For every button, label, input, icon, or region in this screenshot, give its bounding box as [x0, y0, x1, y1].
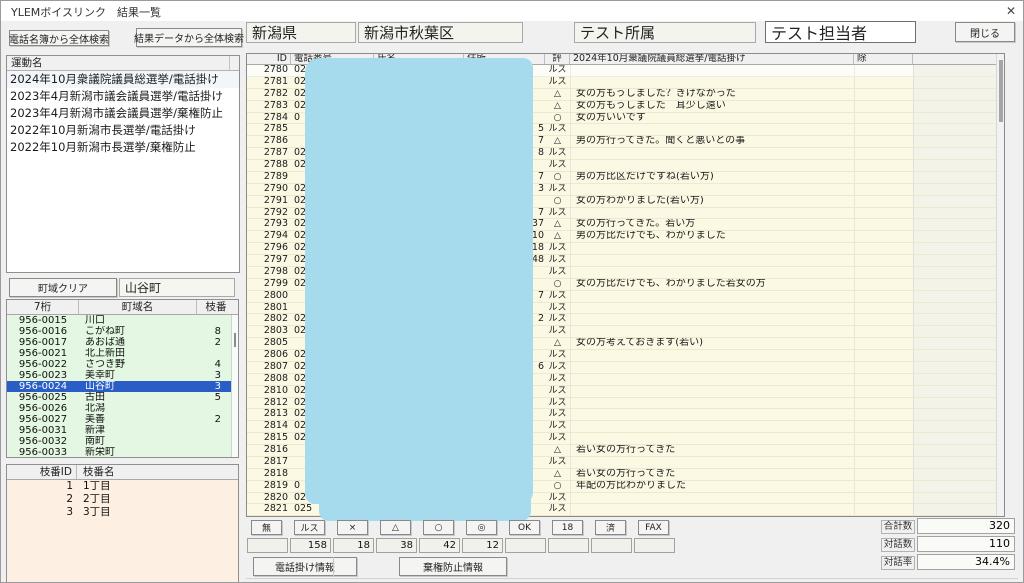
result-id: 2814 — [247, 421, 291, 432]
bottom-divider — [246, 578, 1018, 579]
result-eval: ○ — [545, 196, 570, 207]
town-name: 北上新田 — [79, 348, 197, 359]
town-name: 北潟 — [79, 403, 197, 414]
result-filler — [913, 219, 1004, 230]
result-exclude — [854, 350, 913, 361]
result-eval: ○ — [545, 279, 570, 290]
branch-name: 1丁目 — [77, 480, 238, 493]
result-filler — [913, 303, 1004, 314]
result-exclude — [854, 279, 913, 290]
result-exclude — [854, 481, 913, 492]
result-id: 2810 — [247, 386, 291, 397]
result-comment — [570, 303, 854, 314]
town-zip: 956-0031 — [7, 425, 79, 436]
result-filler — [913, 386, 1004, 397]
result-comment — [570, 148, 854, 159]
result-eval: ルス — [545, 421, 570, 432]
town-row[interactable]: 956-0017あおば通2 — [7, 337, 238, 348]
result-comment — [570, 326, 854, 337]
town-branch-count — [197, 403, 235, 414]
result-exclude — [854, 267, 913, 278]
town-row[interactable]: 956-0023美幸町3 — [7, 370, 238, 381]
eval-filter-button[interactable]: OK — [509, 520, 540, 535]
result-eval: ルス — [545, 504, 570, 515]
town-col-zip: 7桁 — [7, 300, 79, 314]
result-filler — [913, 77, 1004, 88]
result-comment: 男の方比区だけですね(若い方) — [570, 172, 854, 183]
result-filler — [913, 421, 1004, 432]
result-filler — [913, 184, 1004, 195]
result-filler — [913, 136, 1004, 147]
branch-id: 3 — [7, 506, 77, 519]
result-exclude — [854, 445, 913, 456]
town-row[interactable]: 956-0025古田5 — [7, 392, 238, 403]
result-filler — [913, 493, 1004, 504]
campaign-item[interactable]: 2022年10月新潟市長選挙/電話掛け — [7, 122, 239, 139]
result-exclude — [854, 89, 913, 100]
call-info-button[interactable]: 電話掛け情報 — [253, 557, 357, 576]
search-results-button[interactable]: 結果データから全体検索 — [136, 28, 242, 47]
stat-value: 34.4% — [917, 554, 1015, 570]
result-exclude — [854, 124, 913, 135]
stat-label: 合計数 — [881, 520, 915, 534]
town-name: 南町 — [79, 436, 197, 447]
result-comment: 女の方行ってきた。若い方 — [570, 219, 854, 230]
result-comment — [570, 433, 854, 444]
search-phonebook-button[interactable]: 電話名簿から全体検索 — [9, 30, 109, 46]
result-exclude — [854, 101, 913, 112]
town-row[interactable]: 956-0032南町 — [7, 436, 238, 447]
redaction-overlay — [305, 58, 533, 504]
result-id: 2803 — [247, 326, 291, 337]
town-name: 古田 — [79, 392, 197, 403]
eval-filter-button[interactable]: ○ — [423, 520, 454, 535]
result-exclude — [854, 172, 913, 183]
branch-col-id: 枝番ID — [7, 465, 77, 479]
result-exclude — [854, 184, 913, 195]
result-eval: △ — [545, 101, 570, 112]
result-eval: ルス — [545, 184, 570, 195]
result-eval: ○ — [545, 172, 570, 183]
result-id: 2790 — [247, 184, 291, 195]
result-id: 2787 — [247, 148, 291, 159]
town-branch-count: 3 — [197, 381, 235, 392]
result-filler — [913, 326, 1004, 337]
eval-filter-button[interactable]: △ — [380, 520, 411, 535]
town-zip: 956-0016 — [7, 326, 79, 337]
result-comment — [570, 208, 854, 219]
result-filler — [913, 243, 1004, 254]
result-eval: △ — [545, 219, 570, 230]
result-exclude — [854, 255, 913, 266]
result-id: 2797 — [247, 255, 291, 266]
result-id: 2798 — [247, 267, 291, 278]
town-row[interactable]: 956-0022さつき野4 — [7, 359, 238, 370]
result-exclude — [854, 291, 913, 302]
branch-id: 1 — [7, 480, 77, 493]
branch-table: 枝番ID 枝番名 11丁目22丁目33丁目 — [6, 464, 239, 583]
result-exclude — [854, 504, 913, 515]
results-scrollbar[interactable] — [996, 54, 1004, 516]
stat-label: 対話率 — [881, 556, 915, 570]
result-id: 2817 — [247, 457, 291, 468]
result-comment — [570, 350, 854, 361]
town-zip: 956-0026 — [7, 403, 79, 414]
affiliation-field: テスト所属 — [574, 22, 756, 43]
campaign-header: 運動名 — [7, 56, 239, 71]
result-filler — [913, 457, 1004, 468]
result-id: 2806 — [247, 350, 291, 361]
town-name: 新栄町 — [79, 447, 197, 458]
town-scrollbar-thumb[interactable] — [234, 333, 236, 347]
campaign-list: 2024年10月衆議院議員総選挙/電話掛け2023年4月新潟市議会議員選挙/電話… — [7, 71, 239, 156]
result-id: 2818 — [247, 469, 291, 480]
result-eval: ○ — [545, 481, 570, 492]
result-eval: ルス — [545, 303, 570, 314]
town-name: 新津 — [79, 425, 197, 436]
close-icon[interactable]: ✕ — [1003, 3, 1019, 19]
bottom-separator — [333, 557, 334, 576]
town-row[interactable]: 956-0015川口 — [7, 315, 238, 326]
col-campaign-comment: 2024年10月衆議院議員総選挙/電話掛け — [570, 54, 854, 64]
branch-id: 2 — [7, 493, 77, 506]
town-branch-count: 4 — [197, 359, 235, 370]
result-id: 2791 — [247, 196, 291, 207]
result-eval: ルス — [545, 65, 570, 76]
town-zip: 956-0015 — [7, 315, 79, 326]
result-id: 2800 — [247, 291, 291, 302]
result-eval: ルス — [545, 314, 570, 325]
stat-value: 320 — [917, 518, 1015, 534]
col-eval: 評 — [545, 54, 570, 64]
result-filler — [913, 148, 1004, 159]
result-comment: 若い女の方行ってきた — [570, 445, 854, 456]
town-name: あおば通 — [79, 337, 197, 348]
results-scrollbar-thumb[interactable] — [999, 60, 1003, 122]
result-comment — [570, 77, 854, 88]
result-exclude — [854, 160, 913, 171]
result-filler — [913, 433, 1004, 444]
result-exclude — [854, 113, 913, 124]
result-id: 2784 — [247, 113, 291, 124]
result-filler — [913, 196, 1004, 207]
eval-count-box: 18 — [333, 538, 374, 553]
result-id: 2801 — [247, 303, 291, 314]
result-eval: ルス — [545, 398, 570, 409]
result-comment — [570, 255, 854, 266]
town-table-body: 956-0015川口956-0016こがね町8956-0017あおば通2956-… — [7, 315, 238, 458]
eval-filter-button[interactable]: FAX — [638, 520, 669, 535]
town-row[interactable]: 956-0026北潟 — [7, 403, 238, 414]
town-clear-button[interactable]: 町域クリア — [9, 278, 117, 297]
result-comment: 女の方いいです — [570, 113, 854, 124]
eval-filter-button[interactable]: ◎ — [466, 520, 497, 535]
town-zip: 956-0024 — [7, 381, 79, 392]
result-id: 2821 — [247, 504, 291, 515]
branch-row[interactable]: 11丁目 — [7, 480, 238, 493]
result-id: 2792 — [247, 208, 291, 219]
town-name: こがね町 — [79, 326, 197, 337]
result-exclude — [854, 398, 913, 409]
town-name: 美善 — [79, 414, 197, 425]
eval-count-box: 38 — [376, 538, 417, 553]
result-comment — [570, 65, 854, 76]
result-exclude — [854, 303, 913, 314]
result-eval: ルス — [545, 255, 570, 266]
result-eval: ○ — [545, 113, 570, 124]
result-id: 2786 — [247, 136, 291, 147]
result-exclude — [854, 421, 913, 432]
abstain-info-button[interactable]: 棄権防止情報 — [399, 557, 507, 576]
town-input[interactable]: 山谷町 — [119, 278, 235, 297]
eval-count-box — [634, 538, 675, 553]
result-eval: ルス — [545, 374, 570, 385]
eval-count-box: 158 — [290, 538, 331, 553]
branch-table-body: 11丁目22丁目33丁目 — [7, 480, 238, 519]
stat-label: 対話数 — [881, 538, 915, 552]
result-comment — [570, 362, 854, 373]
result-eval: ルス — [545, 160, 570, 171]
result-eval: ルス — [545, 243, 570, 254]
eval-filter-button[interactable]: 18 — [552, 520, 583, 535]
col-id: ID — [247, 54, 291, 64]
result-exclude — [854, 219, 913, 230]
close-button[interactable]: 閉じる — [955, 22, 1015, 42]
result-comment — [570, 386, 854, 397]
result-filler — [913, 267, 1004, 278]
result-id: 2813 — [247, 409, 291, 420]
result-eval: ルス — [545, 362, 570, 373]
result-eval: ルス — [545, 148, 570, 159]
result-filler — [913, 160, 1004, 171]
town-row[interactable]: 956-0027美善2 — [7, 414, 238, 425]
result-filler — [913, 350, 1004, 361]
town-zip: 956-0023 — [7, 370, 79, 381]
result-filler — [913, 113, 1004, 124]
result-eval: ルス — [545, 386, 570, 397]
city-field: 新潟市秋葉区 — [358, 22, 523, 43]
result-id: 2794 — [247, 231, 291, 242]
result-exclude — [854, 326, 913, 337]
town-scrollbar[interactable] — [231, 315, 238, 457]
result-filler — [913, 445, 1004, 456]
result-eval: ルス — [545, 409, 570, 420]
town-row[interactable]: 956-0021北上新田 — [7, 348, 238, 359]
town-row[interactable]: 956-0024山谷町3 — [7, 381, 238, 392]
result-exclude — [854, 77, 913, 88]
eval-filter-button[interactable]: 無 — [251, 520, 282, 535]
town-zip: 956-0032 — [7, 436, 79, 447]
app-window: YLEMボイスリンク 結果一覧 ✕ 電話名簿から全体検索 結果データから全体検索… — [0, 0, 1024, 583]
result-comment: 年配の方比わかりました — [570, 481, 854, 492]
campaign-item[interactable]: 2023年4月新潟市議会議員選挙/棄権防止 — [7, 105, 239, 122]
branch-col-name: 枝番名 — [77, 465, 238, 479]
result-filler — [913, 255, 1004, 266]
result-filler — [913, 124, 1004, 135]
prefecture-field: 新潟県 — [246, 22, 356, 43]
campaign-item[interactable]: 2023年4月新潟市議会議員選挙/電話掛け — [7, 88, 239, 105]
result-filler — [913, 89, 1004, 100]
result-exclude — [854, 386, 913, 397]
town-zip: 956-0017 — [7, 337, 79, 348]
result-eval: ルス — [545, 493, 570, 504]
result-exclude — [854, 231, 913, 242]
result-comment: 男の方行ってきた。聞くと悪いとの事 — [570, 136, 854, 147]
town-row[interactable]: 956-0031新津 — [7, 425, 238, 436]
result-id: 2785 — [247, 124, 291, 135]
eval-filter-button[interactable]: ルス — [294, 520, 325, 535]
result-filler — [913, 338, 1004, 349]
result-id: 2805 — [247, 338, 291, 349]
col-exclude: 除 — [854, 54, 913, 64]
result-id: 2781 — [247, 77, 291, 88]
town-branch-count — [197, 447, 235, 458]
result-id: 2783 — [247, 101, 291, 112]
town-name: 山谷町 — [79, 381, 197, 392]
result-comment — [570, 291, 854, 302]
town-col-branch: 枝番 — [197, 300, 235, 314]
result-id: 2799 — [247, 279, 291, 290]
town-branch-count: 3 — [197, 370, 235, 381]
eval-filter-button[interactable]: × — [337, 520, 368, 535]
branch-table-header: 枝番ID 枝番名 — [7, 465, 238, 480]
result-filler — [913, 374, 1004, 385]
town-zip: 956-0033 — [7, 447, 79, 458]
result-comment: 女の方比だけでも、わかりました若女の方 — [570, 279, 854, 290]
town-row[interactable]: 956-0016こがね町8 — [7, 326, 238, 337]
result-id: 2782 — [247, 89, 291, 100]
result-exclude — [854, 65, 913, 76]
result-exclude — [854, 196, 913, 207]
town-branch-count — [197, 436, 235, 447]
town-table: 7桁 町域名 枝番 956-0015川口956-0016こがね町8956-001… — [6, 299, 239, 458]
result-filler — [913, 362, 1004, 373]
col-filler — [913, 54, 1004, 64]
title-bar: YLEMボイスリンク 結果一覧 ✕ — [1, 1, 1023, 21]
result-id: 2780 — [247, 65, 291, 76]
result-exclude — [854, 314, 913, 325]
result-filler — [913, 101, 1004, 112]
result-id: 2808 — [247, 374, 291, 385]
result-comment — [570, 267, 854, 278]
eval-filter-button[interactable]: 済 — [595, 520, 626, 535]
stat-value: 110 — [917, 536, 1015, 552]
result-eval: ルス — [545, 457, 570, 468]
result-id: 2812 — [247, 398, 291, 409]
result-filler — [913, 481, 1004, 492]
town-zip: 956-0021 — [7, 348, 79, 359]
result-eval: ルス — [545, 433, 570, 444]
result-comment: 男の方比だけでも、わかりました — [570, 231, 854, 242]
result-comment — [570, 374, 854, 385]
result-eval: ルス — [545, 291, 570, 302]
eval-count-box — [548, 538, 589, 553]
eval-count-box: 12 — [462, 538, 503, 553]
town-row[interactable]: 956-0033新栄町 — [7, 447, 238, 458]
result-comment — [570, 184, 854, 195]
result-eval: △ — [545, 469, 570, 480]
campaign-item[interactable]: 2024年10月衆議院議員総選挙/電話掛け — [7, 71, 239, 88]
result-exclude — [854, 148, 913, 159]
result-eval: ルス — [545, 267, 570, 278]
result-comment: 女の方もうしました 耳少し遠い — [570, 101, 854, 112]
result-filler — [913, 314, 1004, 325]
town-branch-count: 5 — [197, 392, 235, 403]
operator-input[interactable]: テスト担当者 — [765, 21, 916, 43]
result-comment — [570, 160, 854, 171]
town-zip: 956-0022 — [7, 359, 79, 370]
result-comment — [570, 421, 854, 432]
town-name: 美幸町 — [79, 370, 197, 381]
town-zip: 956-0025 — [7, 392, 79, 403]
result-filler — [913, 504, 1004, 515]
result-exclude — [854, 362, 913, 373]
result-comment — [570, 409, 854, 420]
result-exclude — [854, 433, 913, 444]
result-filler — [913, 291, 1004, 302]
result-exclude — [854, 374, 913, 385]
eval-count-box — [591, 538, 632, 553]
result-eval: △ — [545, 89, 570, 100]
result-id: 2789 — [247, 172, 291, 183]
town-table-header: 7桁 町域名 枝番 — [7, 300, 238, 315]
campaign-item[interactable]: 2022年10月新潟市長選挙/棄権防止 — [7, 139, 239, 156]
result-id: 2819 — [247, 481, 291, 492]
result-comment: 女の方考えておきます(若い) — [570, 338, 854, 349]
town-zip: 956-0027 — [7, 414, 79, 425]
window-title: YLEMボイスリンク 結果一覧 — [11, 4, 161, 20]
town-name: さつき野 — [79, 359, 197, 370]
result-exclude — [854, 243, 913, 254]
eval-count-box — [247, 538, 288, 553]
result-eval: △ — [545, 231, 570, 242]
result-id: 2815 — [247, 433, 291, 444]
result-id: 2820 — [247, 493, 291, 504]
redaction-overlay-tab — [319, 496, 531, 521]
result-eval: ルス — [545, 208, 570, 219]
result-comment — [570, 124, 854, 135]
campaign-panel: 運動名 2024年10月衆議院議員総選挙/電話掛け2023年4月新潟市議会議員選… — [6, 55, 240, 273]
result-comment — [570, 314, 854, 325]
branch-row[interactable]: 33丁目 — [7, 506, 238, 519]
result-comment — [570, 504, 854, 515]
branch-name: 3丁目 — [77, 506, 238, 519]
result-filler — [913, 409, 1004, 420]
result-filler — [913, 398, 1004, 409]
result-eval: △ — [545, 338, 570, 349]
result-comment: 女の方もうしました？きけなかった — [570, 89, 854, 100]
result-comment — [570, 398, 854, 409]
result-filler — [913, 65, 1004, 76]
result-eval: ルス — [545, 77, 570, 88]
branch-row[interactable]: 22丁目 — [7, 493, 238, 506]
result-exclude — [854, 457, 913, 468]
result-comment — [570, 243, 854, 254]
result-id: 2802 — [247, 314, 291, 325]
result-id: 2796 — [247, 243, 291, 254]
town-branch-count — [197, 348, 235, 359]
result-comment — [570, 493, 854, 504]
eval-count-box: 42 — [419, 538, 460, 553]
result-exclude — [854, 208, 913, 219]
result-filler — [913, 208, 1004, 219]
town-branch-count — [197, 315, 235, 326]
result-exclude — [854, 338, 913, 349]
result-id: 2807 — [247, 362, 291, 373]
result-id: 2793 — [247, 219, 291, 230]
result-filler — [913, 279, 1004, 290]
result-filler — [913, 172, 1004, 183]
